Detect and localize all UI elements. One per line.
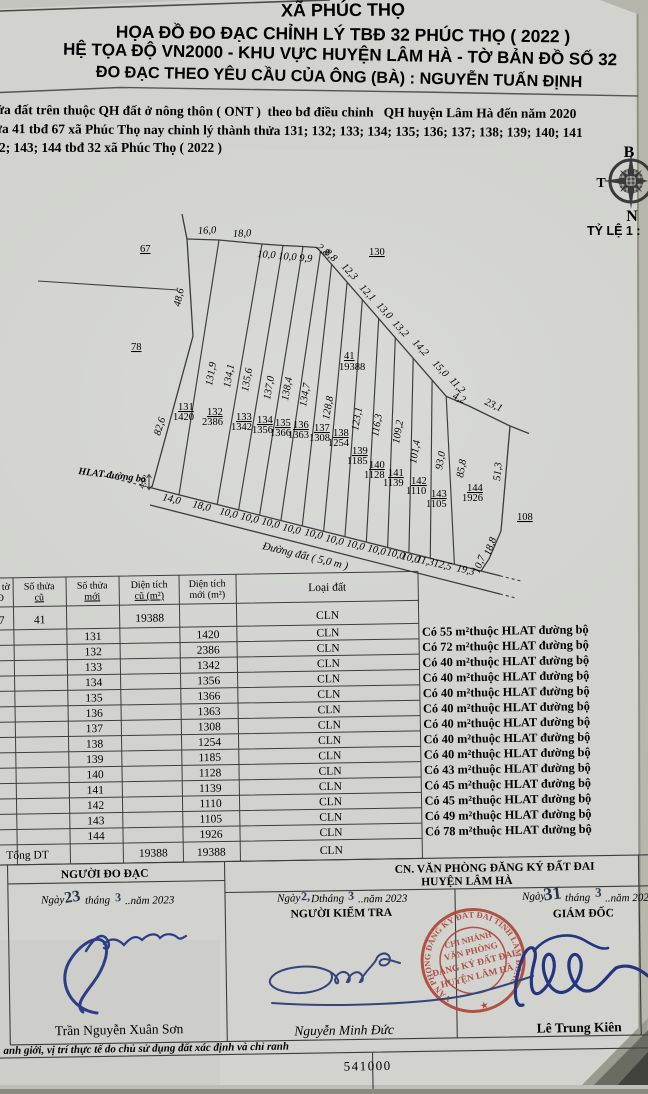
svg-text:Diện tích: Diện tích xyxy=(131,579,168,591)
svg-text:tháng: tháng xyxy=(85,894,111,906)
svg-text:Có 43 m²thuộc HLAT đường bộ: Có 43 m²thuộc HLAT đường bộ xyxy=(424,760,591,777)
svg-text:Ngày: Ngày xyxy=(276,892,301,904)
svg-text:Đ: Đ xyxy=(0,593,4,604)
svg-text:1926: 1926 xyxy=(199,829,222,841)
svg-text:Có 40 m²thuộc HLAT đường bộ: Có 40 m²thuộc HLAT đường bộ xyxy=(423,684,590,701)
svg-text:1185: 1185 xyxy=(347,456,368,467)
svg-text:19388: 19388 xyxy=(339,362,365,373)
svg-text:1342: 1342 xyxy=(231,422,252,433)
svg-text:..năm 2023: ..năm 2023 xyxy=(358,893,408,906)
svg-text:1926: 1926 xyxy=(462,493,483,504)
svg-text:Trần Nguyễn Xuân Sơn: Trần Nguyễn Xuân Sơn xyxy=(55,1021,184,1038)
svg-text:B: B xyxy=(624,144,635,161)
svg-text:Có 40 m²thuộc HLAT đường bộ: Có 40 m²thuộc HLAT đường bộ xyxy=(423,714,590,731)
svg-text:N: N xyxy=(626,208,638,225)
svg-text:19388: 19388 xyxy=(139,847,168,859)
svg-text:Có 40 m²thuộc HLAT đường bộ: Có 40 m²thuộc HLAT đường bộ xyxy=(423,699,590,716)
svg-text:CLN: CLN xyxy=(318,765,342,777)
svg-text:Có 49 m²thuộc HLAT đường bộ: Có 49 m²thuộc HLAT đường bộ xyxy=(425,807,592,824)
svg-text:Tổng DT: Tổng DT xyxy=(6,848,49,862)
svg-text:..năm 2023: ..năm 2023 xyxy=(125,894,175,907)
svg-text:CLN: CLN xyxy=(319,796,343,808)
svg-text:mới (m²): mới (m²) xyxy=(189,589,225,601)
svg-text:78: 78 xyxy=(131,342,142,353)
svg-text:CLN: CLN xyxy=(320,845,344,857)
svg-text:Ngày: Ngày xyxy=(521,890,546,902)
svg-text:1363: 1363 xyxy=(288,430,309,441)
svg-text:130: 130 xyxy=(369,247,385,258)
svg-text:Có 45 m²thuộc HLAT đường bộ: Có 45 m²thuộc HLAT đường bộ xyxy=(424,791,591,808)
svg-text:1110: 1110 xyxy=(199,798,222,810)
svg-text:18,0: 18,0 xyxy=(233,228,253,240)
svg-text:3: 3 xyxy=(348,888,354,902)
svg-text:1366: 1366 xyxy=(197,690,220,702)
svg-text:Diện tích: Diện tích xyxy=(189,578,226,590)
svg-text:135: 135 xyxy=(85,692,103,704)
svg-text:CLN: CLN xyxy=(317,689,341,701)
svg-text:133: 133 xyxy=(85,662,103,674)
svg-text:108: 108 xyxy=(517,512,533,523)
svg-text:16,0: 16,0 xyxy=(198,225,218,237)
svg-text:138: 138 xyxy=(86,738,104,750)
svg-text:7: 7 xyxy=(0,615,5,627)
svg-text:1139: 1139 xyxy=(199,783,222,795)
svg-text:132: 132 xyxy=(84,646,102,658)
svg-text:143: 143 xyxy=(87,815,105,827)
svg-text:CLN: CLN xyxy=(316,627,340,639)
svg-text:CLN: CLN xyxy=(318,750,342,762)
svg-text:139: 139 xyxy=(86,754,104,766)
svg-text:2,: 2, xyxy=(301,889,310,903)
svg-text:CLN: CLN xyxy=(318,704,342,716)
svg-text:1139: 1139 xyxy=(383,478,404,489)
svg-text:41: 41 xyxy=(344,351,355,362)
svg-text:10,0: 10,0 xyxy=(278,251,298,263)
svg-text:..năm 2023: ..năm 2023 xyxy=(605,892,648,905)
svg-text:137: 137 xyxy=(86,723,104,735)
svg-text:HUYỆN LÂM HÀ: HUYỆN LÂM HÀ xyxy=(421,873,513,888)
svg-text:141: 141 xyxy=(87,784,105,796)
svg-text:31: 31 xyxy=(542,882,562,904)
svg-text:140: 140 xyxy=(86,769,104,781)
svg-text:tháng: tháng xyxy=(565,892,591,904)
svg-text:cũ (m²): cũ (m²) xyxy=(135,590,165,601)
svg-text:CLN: CLN xyxy=(318,735,342,747)
svg-text:9,9: 9,9 xyxy=(299,253,314,265)
svg-text:2386: 2386 xyxy=(197,644,220,656)
svg-text:Có 55 m²thuộc HLAT đường bộ: Có 55 m²thuộc HLAT đường bộ xyxy=(422,622,589,639)
svg-text:cũ: cũ xyxy=(35,592,45,603)
svg-text:541000: 541000 xyxy=(344,1058,392,1074)
svg-text:1342: 1342 xyxy=(197,660,220,672)
svg-text:CLN: CLN xyxy=(317,642,341,654)
svg-text:3: 3 xyxy=(595,885,602,900)
svg-text:CLN: CLN xyxy=(319,811,343,823)
svg-text:Số thửa: Số thửa xyxy=(77,580,108,591)
svg-text:Có 40 m²thuộc HLAT đường bộ: Có 40 m²thuộc HLAT đường bộ xyxy=(423,668,590,685)
svg-text:1420: 1420 xyxy=(173,412,194,423)
svg-text:1308: 1308 xyxy=(309,433,330,444)
svg-text:2; 143; 144 tbđ 32 xã Phúc Thọ: 2; 143; 144 tbđ 32 xã Phúc Thọ ( 2022 ) xyxy=(0,140,222,155)
svg-text:Có 78 m²thuộc HLAT đường bộ: Có 78 m²thuộc HLAT đường bộ xyxy=(425,822,592,839)
svg-text:TỶ LỆ 1 :: TỶ LỆ 1 : xyxy=(587,223,640,238)
svg-text:Có 40 m²thuộc HLAT đường bộ: Có 40 m²thuộc HLAT đường bộ xyxy=(423,730,590,747)
svg-text:Có 45 m²thuộc HLAT đường bộ: Có 45 m²thuộc HLAT đường bộ xyxy=(424,776,591,793)
svg-text:NGƯỜI ĐO ĐẠC: NGƯỜI ĐO ĐẠC xyxy=(61,866,149,881)
svg-text:1128: 1128 xyxy=(199,767,222,779)
svg-text:1105: 1105 xyxy=(199,813,222,825)
svg-text:1363: 1363 xyxy=(198,706,221,718)
svg-text:T: T xyxy=(596,176,606,191)
svg-text:1254: 1254 xyxy=(198,737,221,749)
svg-text:1105: 1105 xyxy=(426,499,447,510)
svg-text:ố tờ: ố tờ xyxy=(0,582,11,593)
svg-text:CLN: CLN xyxy=(319,827,343,839)
svg-text:CLN: CLN xyxy=(318,719,342,731)
svg-text:142: 142 xyxy=(87,800,105,812)
svg-text:1110: 1110 xyxy=(406,486,426,497)
svg-text:23: 23 xyxy=(63,888,81,907)
svg-text:51,3: 51,3 xyxy=(492,462,505,481)
svg-text:1254: 1254 xyxy=(328,438,350,449)
svg-text:1185: 1185 xyxy=(198,752,221,764)
svg-text:3: 3 xyxy=(115,890,121,904)
svg-text:CLN: CLN xyxy=(317,658,341,670)
svg-text:Có 40 m²thuộc HLAT đường bộ: Có 40 m²thuộc HLAT đường bộ xyxy=(422,653,589,670)
svg-text:XÃ PHÚC THỌ: XÃ PHÚC THỌ xyxy=(281,0,405,21)
svg-text:Có 72 m²thuộc HLAT đường bộ: Có 72 m²thuộc HLAT đường bộ xyxy=(422,638,589,655)
svg-text:41: 41 xyxy=(34,614,46,626)
svg-text:Nguyễn Minh Đức: Nguyễn Minh Đức xyxy=(293,1022,394,1039)
svg-text:144: 144 xyxy=(87,830,105,842)
svg-text:CLN: CLN xyxy=(317,673,341,685)
svg-text:67: 67 xyxy=(140,244,151,255)
svg-text:Lê Trung Kiên: Lê Trung Kiên xyxy=(537,1019,623,1035)
svg-text:Số thửa: Số thửa xyxy=(24,581,55,592)
svg-text:19388: 19388 xyxy=(197,846,226,858)
svg-text:1128: 1128 xyxy=(364,470,385,481)
svg-text:1420: 1420 xyxy=(196,629,219,641)
svg-text:Loại đất: Loại đất xyxy=(308,581,347,595)
svg-text:10,0: 10,0 xyxy=(257,249,277,261)
svg-text:136: 136 xyxy=(85,708,103,720)
svg-text:134: 134 xyxy=(85,677,103,689)
svg-text:Dtháng: Dtháng xyxy=(310,893,345,906)
svg-text:CLN: CLN xyxy=(319,781,343,793)
svg-text:19388: 19388 xyxy=(135,612,164,624)
svg-text:Có 40 m²thuộc HLAT đường bộ: Có 40 m²thuộc HLAT đường bộ xyxy=(424,745,591,762)
svg-text:131: 131 xyxy=(84,631,102,643)
svg-text:mới: mới xyxy=(84,591,100,602)
svg-text:CLN: CLN xyxy=(316,610,340,622)
svg-text:1356: 1356 xyxy=(197,675,220,687)
svg-text:Ngày: Ngày xyxy=(40,894,65,906)
svg-text:1308: 1308 xyxy=(198,721,221,733)
svg-text:2386: 2386 xyxy=(202,417,223,428)
